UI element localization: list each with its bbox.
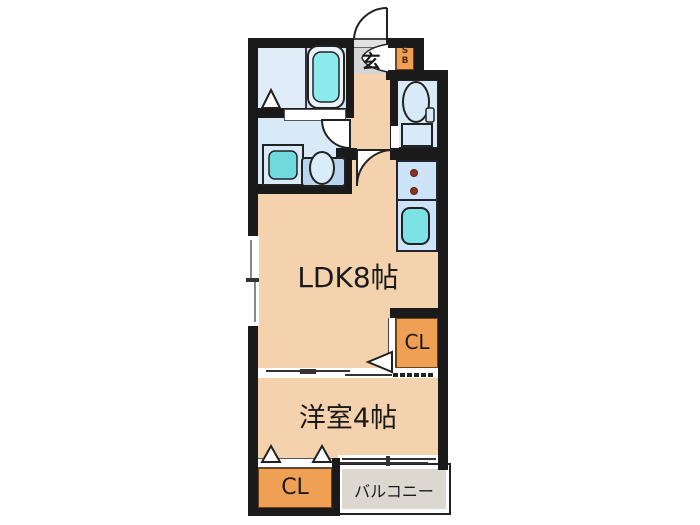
washroom-door-arc	[322, 120, 350, 148]
floorplan: LDK8帖 洋室4帖 CL CL バルコニー 玄 S B	[0, 0, 700, 525]
ldk-door-arc	[357, 150, 393, 186]
ldk-label: LDK8帖	[258, 256, 438, 296]
toilet-icon	[403, 82, 429, 122]
closet-threshold-dots	[393, 373, 433, 377]
closet-upper-label: CL	[396, 330, 438, 354]
western-room-label: 洋室4帖	[258, 396, 438, 435]
bath-door-triangle	[262, 90, 280, 108]
shoe-box-label: S B	[396, 46, 414, 66]
entrance-door-arc	[354, 8, 387, 38]
closet-lower-label: CL	[258, 475, 332, 500]
balcony-label: バルコニー	[342, 478, 446, 502]
closet-fold-triangle	[368, 352, 392, 372]
kitchen-sink-icon	[402, 208, 429, 244]
stove-burners-icon	[411, 170, 418, 177]
genkan-label: 玄	[354, 47, 388, 74]
